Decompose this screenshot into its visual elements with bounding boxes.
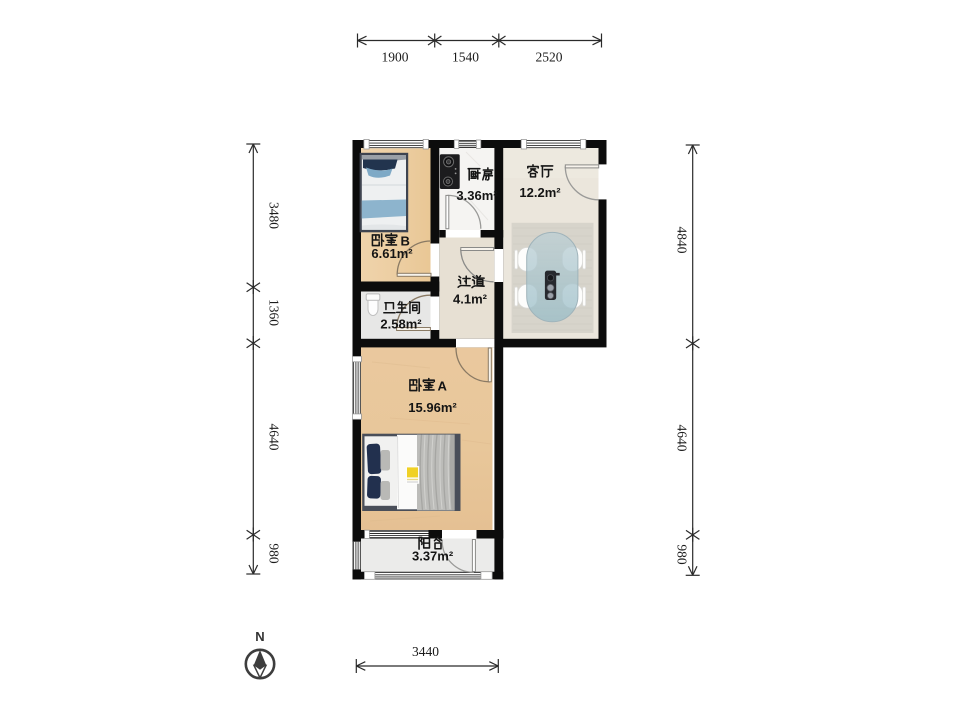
svg-text:4840: 4840 <box>675 227 690 254</box>
svg-text:3.37m²: 3.37m² <box>412 549 454 564</box>
svg-text:1900: 1900 <box>382 50 409 65</box>
svg-text:15.96m²: 15.96m² <box>408 400 457 415</box>
svg-text:2520: 2520 <box>536 50 563 65</box>
svg-text:980: 980 <box>675 544 690 565</box>
svg-text:4.1m²: 4.1m² <box>453 292 488 307</box>
svg-text:2.58m²: 2.58m² <box>380 317 422 332</box>
svg-text:3480: 3480 <box>267 202 282 229</box>
svg-text:1540: 1540 <box>452 50 479 65</box>
svg-text:6.61m²: 6.61m² <box>371 246 413 261</box>
svg-text:4640: 4640 <box>267 424 282 451</box>
svg-text:3.36m²: 3.36m² <box>456 188 498 203</box>
svg-text:N: N <box>255 629 264 644</box>
svg-text:980: 980 <box>267 543 282 564</box>
svg-text:12.2m²: 12.2m² <box>519 185 561 200</box>
svg-text:A: A <box>438 379 448 394</box>
svg-text:4640: 4640 <box>675 425 690 452</box>
svg-text:1360: 1360 <box>267 299 282 326</box>
svg-text:3440: 3440 <box>412 644 439 659</box>
